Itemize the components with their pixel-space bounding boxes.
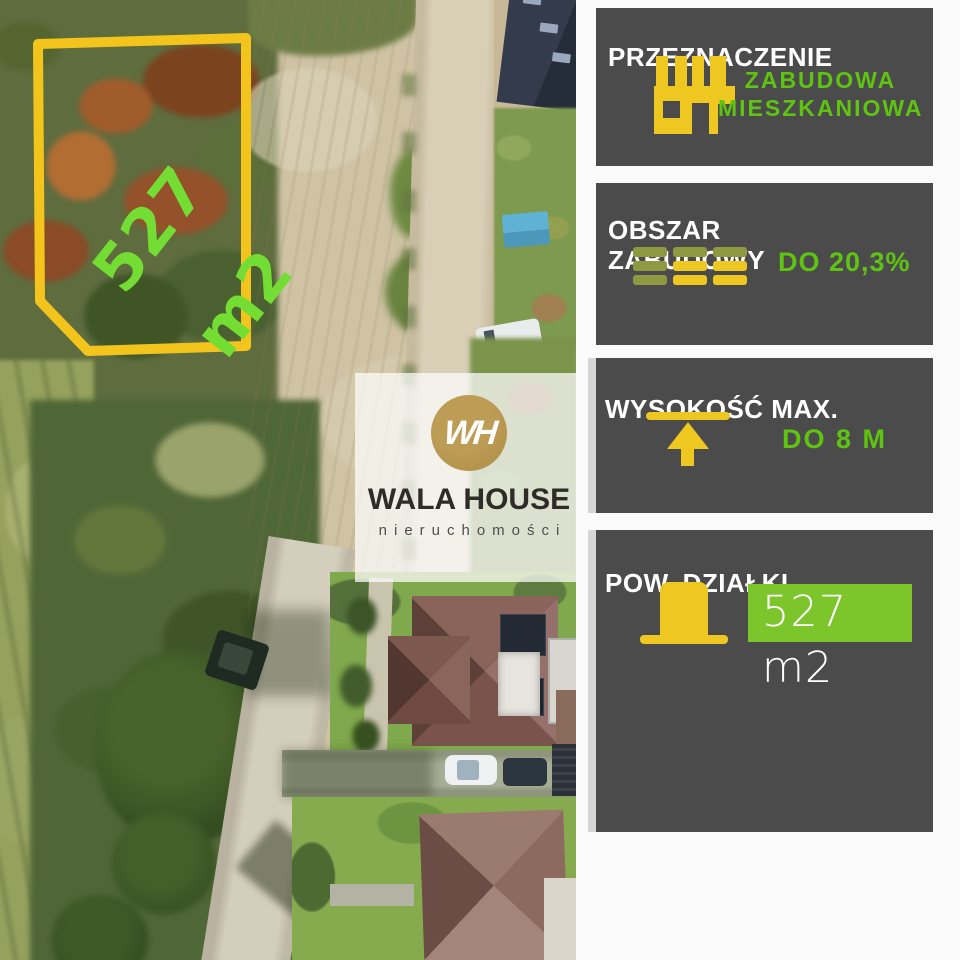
title-line: OBSZAR	[608, 215, 721, 245]
brand-name: WALA HOUSE	[368, 483, 570, 517]
area-badge: 527 m2	[748, 584, 912, 642]
brand-tagline: nieruchomości	[372, 522, 567, 539]
coverage-bars-icon	[633, 247, 747, 285]
panel-value: ZABUDOWA MIESZKANIOWA	[718, 66, 923, 122]
panel-wysokosc-max: WYSOKOŚĆ MAX. DO 8 M	[588, 358, 933, 513]
value-line: ZABUDOWA	[745, 67, 896, 93]
panel-value: DO 8 M	[782, 424, 887, 455]
value-line: MIESZKANIOWA	[718, 95, 923, 121]
panel-obszar-zabudowy: OBSZARZABUDOWY DO 20,3%	[596, 183, 933, 345]
aerial-photo: 527 m2 WH WALA HOUSE nieruchomości	[0, 0, 576, 960]
watermark: WH WALA HOUSE nieruchomości	[355, 373, 576, 582]
height-limit-icon	[646, 412, 730, 476]
panel-przeznaczenie: PRZEZNACZENIE ZABUDOWA MIESZKANIOWA	[596, 8, 933, 166]
brand-monogram: WH	[442, 414, 497, 453]
plot-area-icon	[640, 582, 728, 646]
panel-value: DO 20,3%	[778, 247, 911, 278]
brand-logo-circle: WH	[431, 395, 507, 471]
panel-pow-dzialki: POW. DZIAŁKI 527 m2	[588, 530, 933, 832]
listing-graphic: 527 m2 WH WALA HOUSE nieruchomości PRZEZ…	[0, 0, 960, 960]
